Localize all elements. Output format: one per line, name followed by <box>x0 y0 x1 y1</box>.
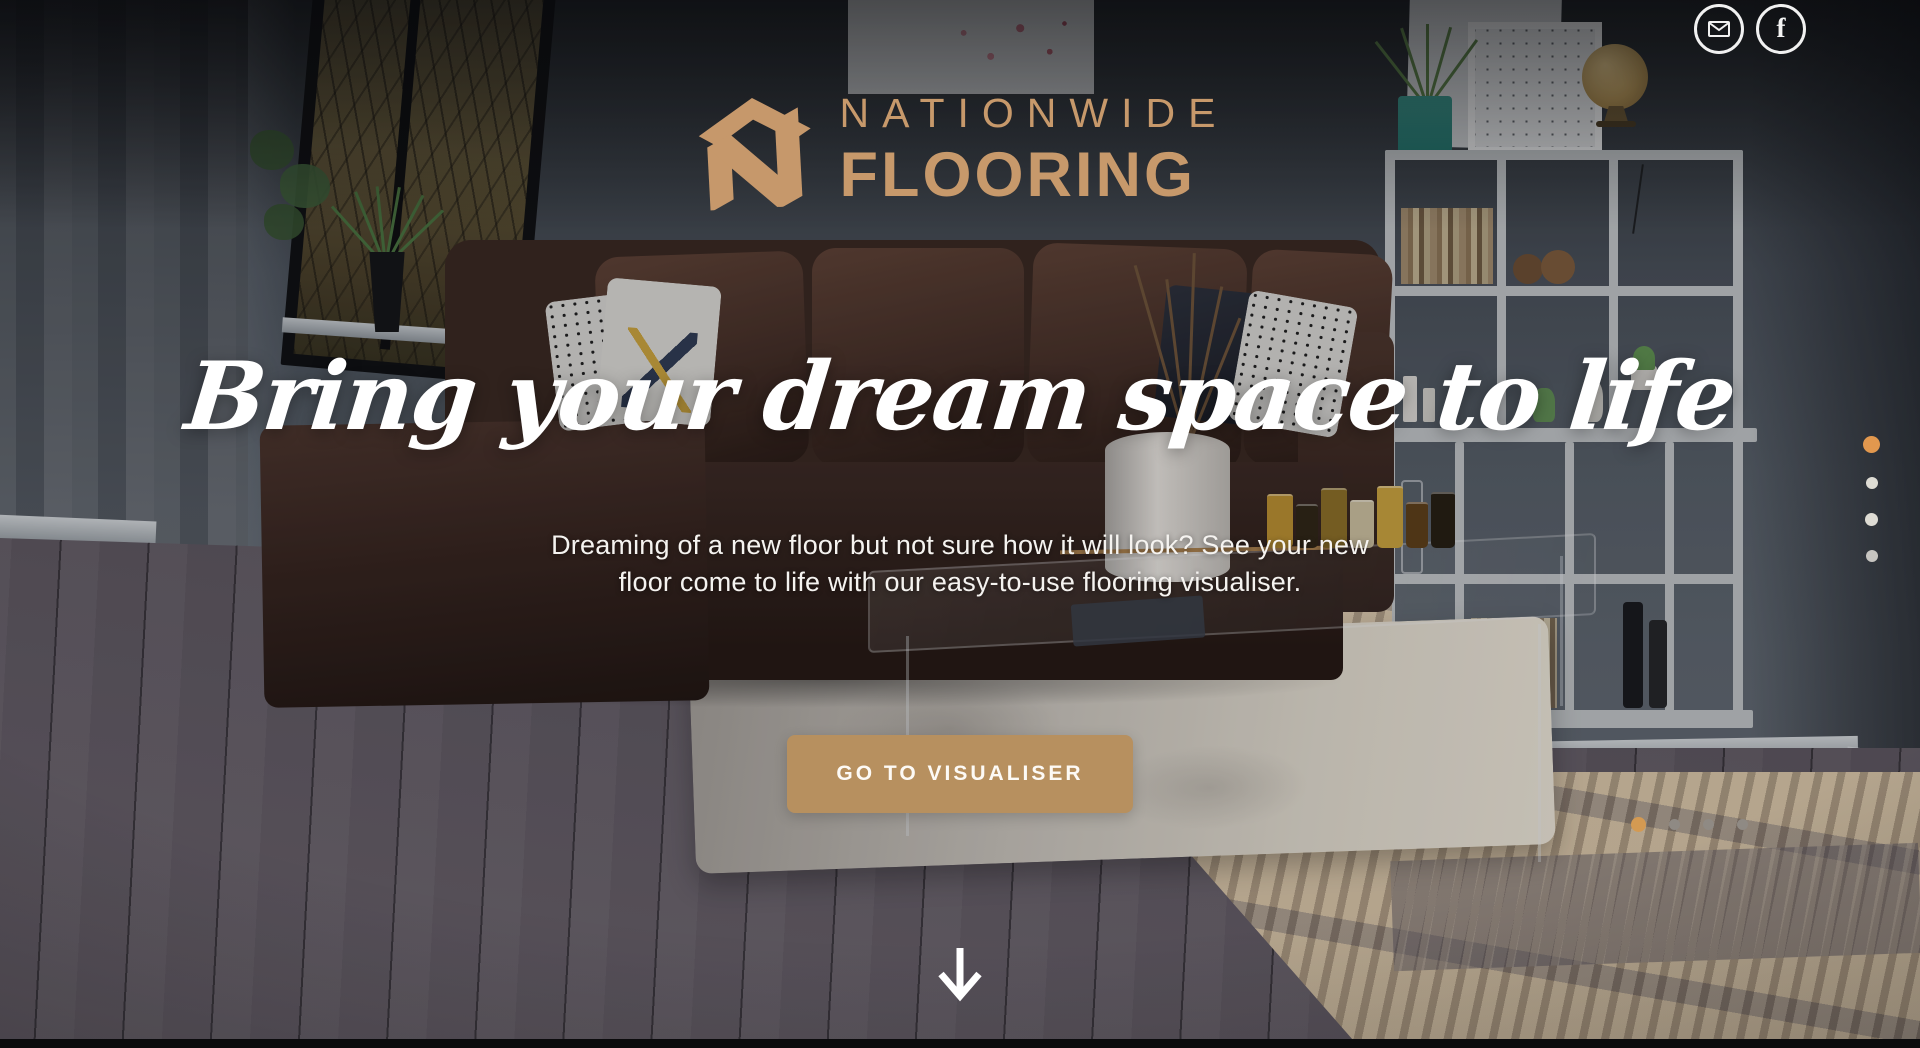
slider-dot-2[interactable] <box>1669 819 1680 830</box>
slider-dot-4[interactable] <box>1737 819 1748 830</box>
slider-dot-1[interactable] <box>1631 817 1646 832</box>
facebook-icon: f <box>1777 15 1786 42</box>
facebook-button[interactable]: f <box>1756 4 1806 54</box>
scroll-down-arrow-icon[interactable] <box>935 946 985 1006</box>
slider-dots <box>1631 817 1748 832</box>
hero-headline: Bring your dream space to life <box>0 342 1920 452</box>
go-to-visualiser-button[interactable]: GO TO VISUALISER <box>787 735 1133 813</box>
hero-content: f NATIONWIDE FLOORING Bring your dream s… <box>0 0 1920 1048</box>
hero-subtext-line2: floor come to life with our easy-to-use … <box>0 564 1920 601</box>
email-button[interactable] <box>1694 4 1744 54</box>
envelope-icon <box>1708 21 1730 37</box>
logo-text: NATIONWIDE FLOORING <box>840 90 1229 211</box>
logo-line-nationwide: NATIONWIDE <box>840 90 1229 137</box>
hero-subtext-line1: Dreaming of a new floor but not sure how… <box>0 527 1920 564</box>
logo-line-flooring: FLOORING <box>840 139 1229 211</box>
nf-logo-mark-icon <box>692 88 820 213</box>
hero-subtext: Dreaming of a new floor but not sure how… <box>0 527 1920 601</box>
section-dot-4[interactable] <box>1866 550 1878 562</box>
hero-section: f NATIONWIDE FLOORING Bring your dream s… <box>0 0 1920 1048</box>
section-dots <box>1863 436 1880 562</box>
section-dot-3[interactable] <box>1865 513 1878 526</box>
section-dot-2[interactable] <box>1866 477 1878 489</box>
section-dot-1[interactable] <box>1863 436 1880 453</box>
slider-dot-3[interactable] <box>1703 819 1714 830</box>
site-logo[interactable]: NATIONWIDE FLOORING <box>692 88 1229 213</box>
